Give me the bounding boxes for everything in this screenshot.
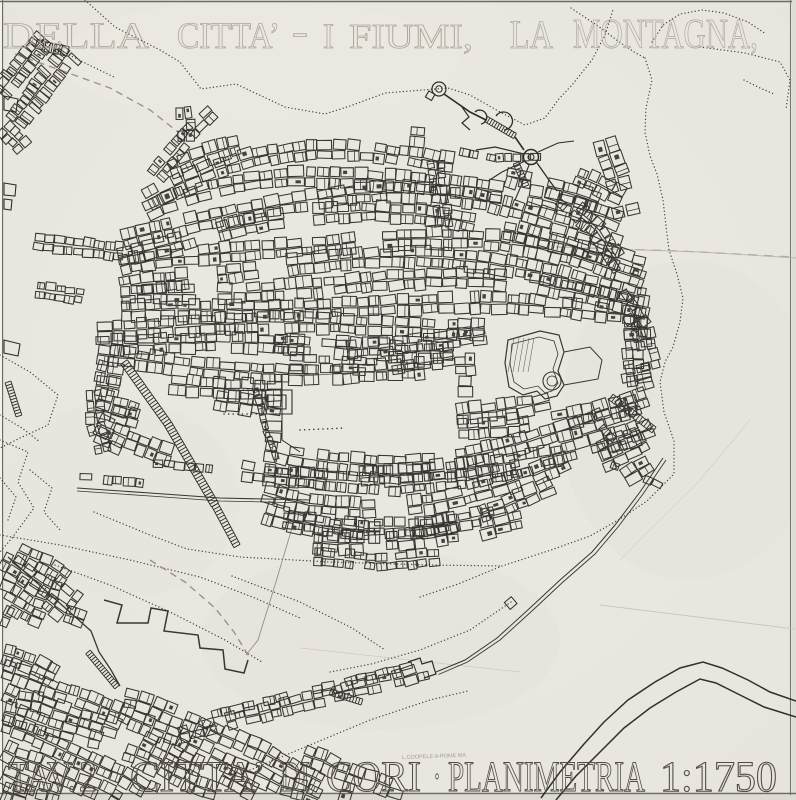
svg-text:I: I bbox=[323, 16, 334, 56]
svg-text:CITTA’: CITTA’ bbox=[130, 754, 266, 800]
svg-text:-: - bbox=[292, 12, 308, 53]
svg-text:·: · bbox=[433, 754, 441, 800]
svg-text:1:1750: 1:1750 bbox=[660, 754, 777, 800]
svg-text:DELLA: DELLA bbox=[3, 16, 149, 57]
svg-text:2: 2 bbox=[79, 754, 97, 800]
svg-text:DI: DI bbox=[280, 754, 310, 800]
svg-text:CORI: CORI bbox=[326, 754, 421, 800]
svg-text:LA: LA bbox=[510, 12, 553, 57]
svg-text:TAV.: TAV. bbox=[8, 754, 76, 800]
svg-text:FIUMI,: FIUMI, bbox=[349, 17, 473, 56]
svg-text:CITTA’: CITTA’ bbox=[177, 16, 280, 57]
svg-text:MONTAGNA,: MONTAGNA, bbox=[573, 12, 758, 58]
svg-text:PLANIMETRIA: PLANIMETRIA bbox=[448, 754, 645, 800]
